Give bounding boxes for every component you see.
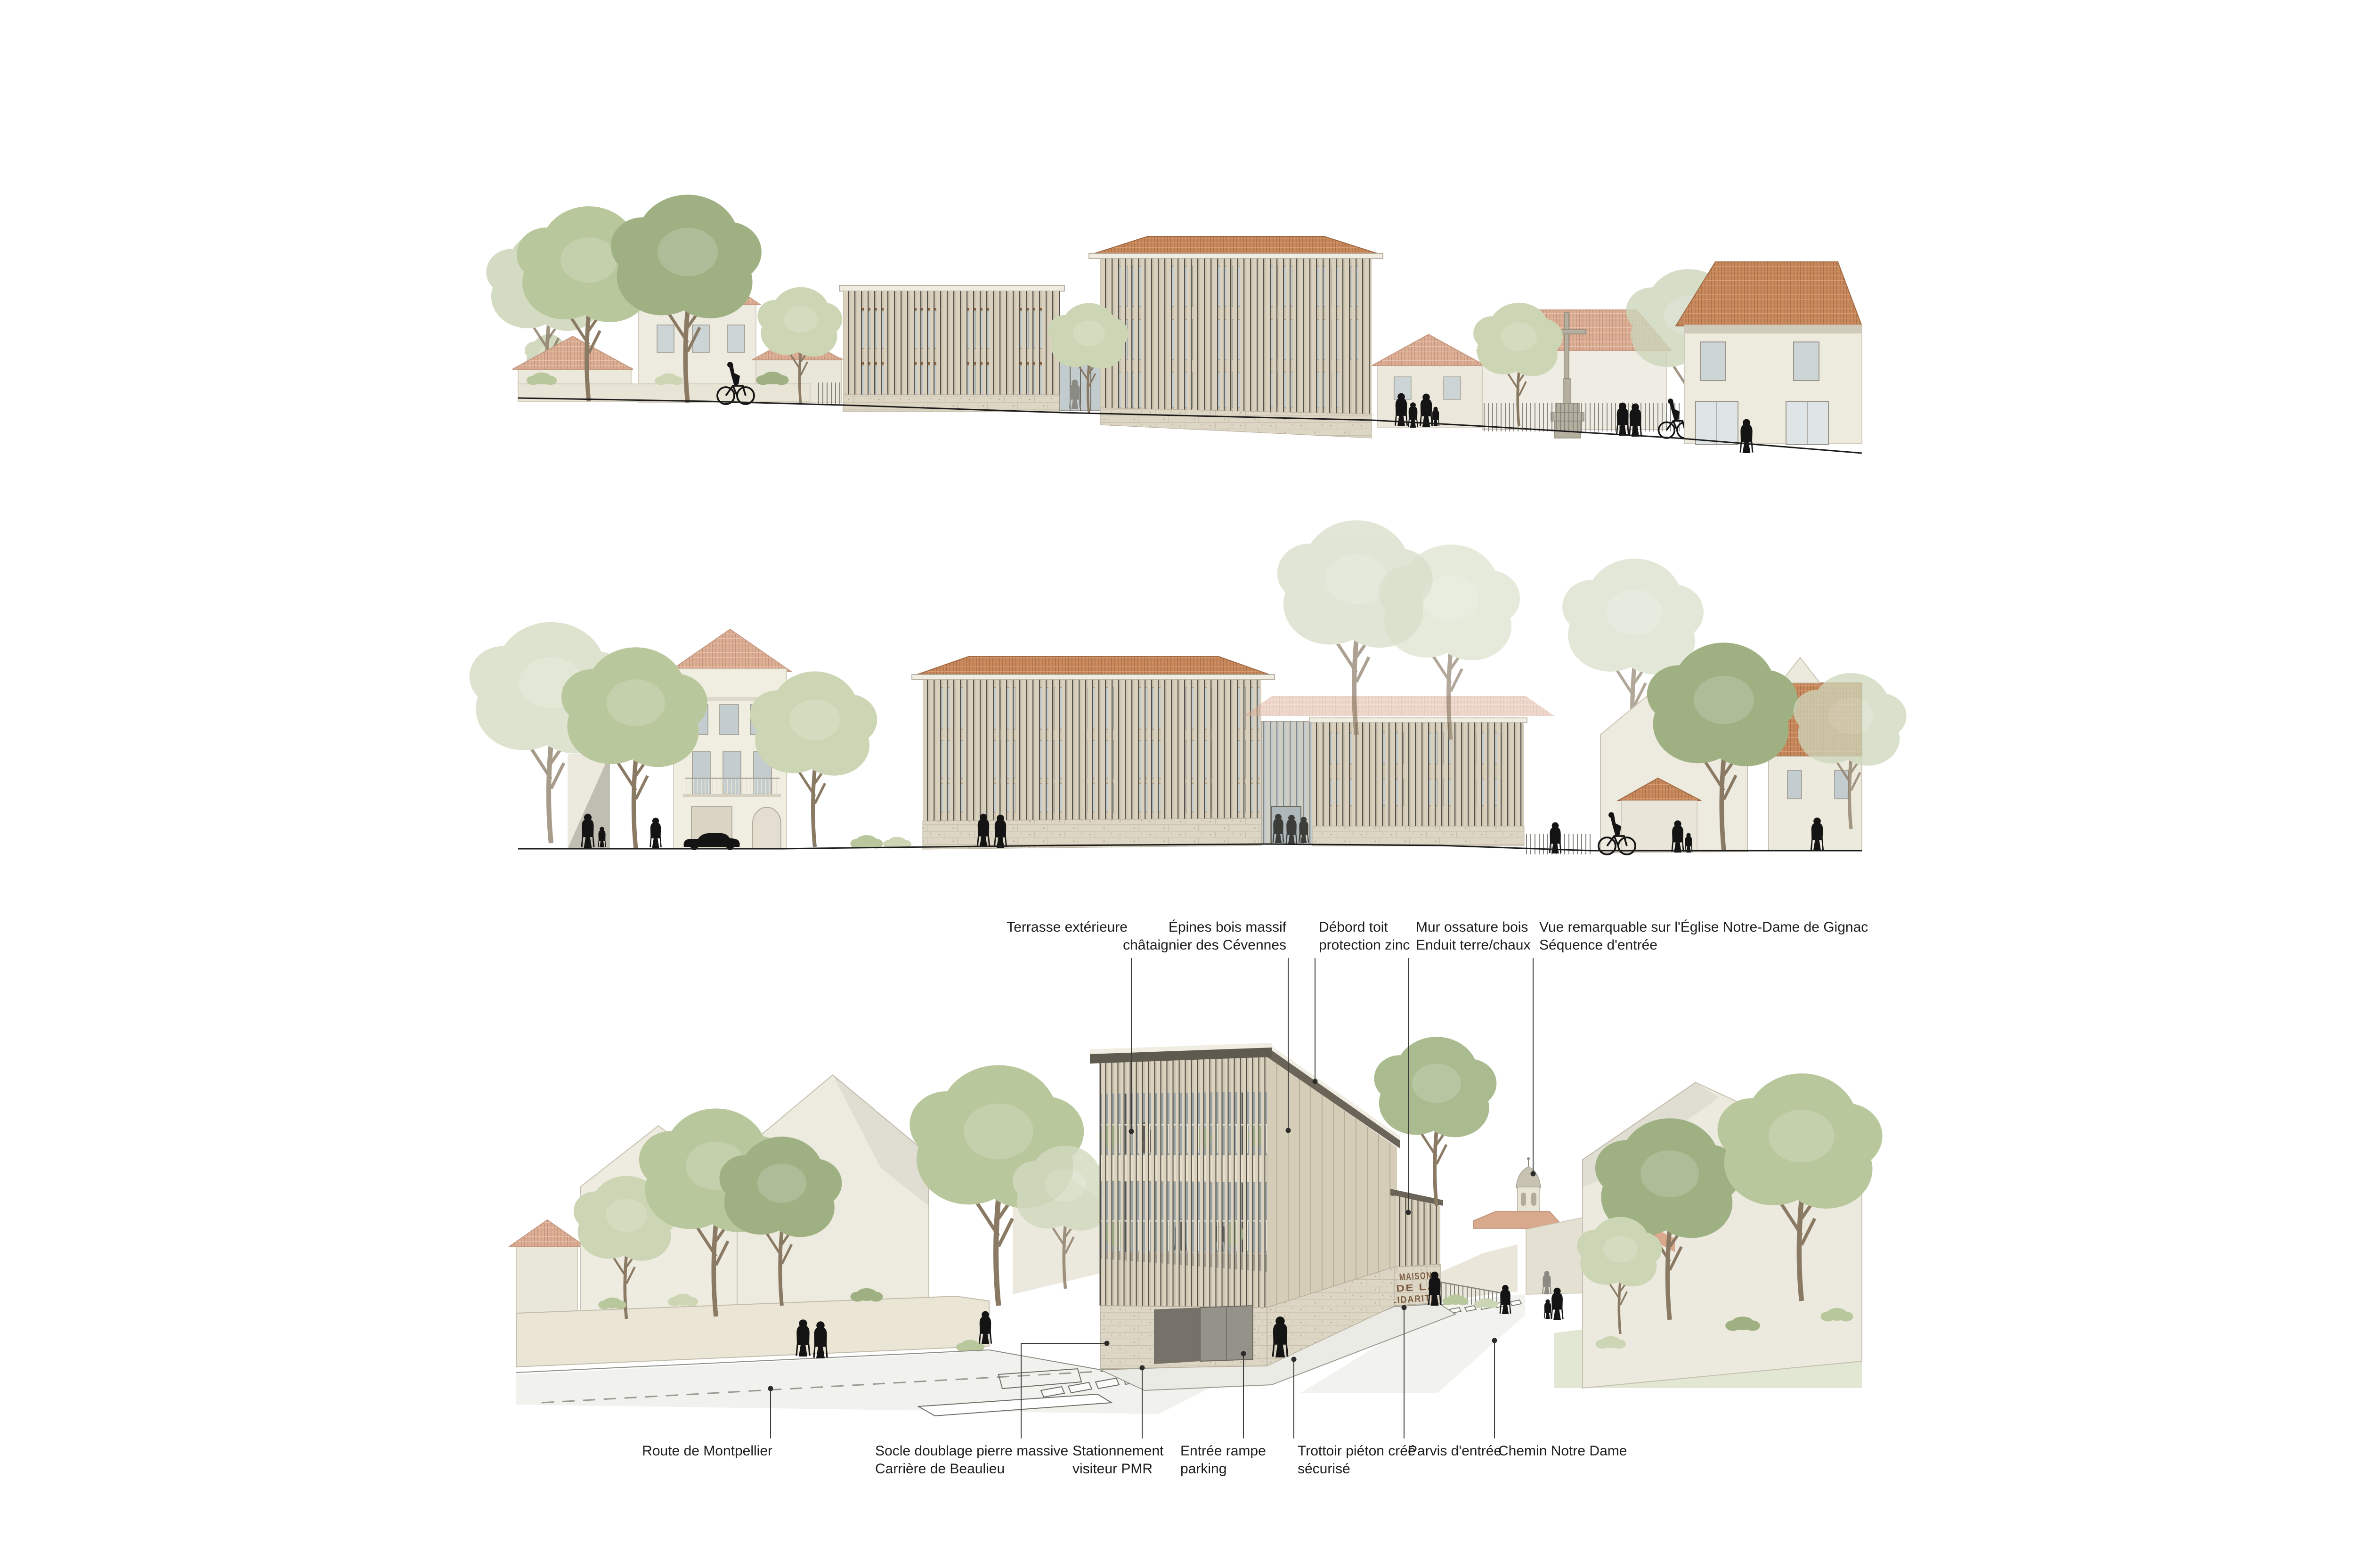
perspective-view: MAISON DE LA SOLIDARITÉ [510, 1037, 1883, 1416]
annotation-chemin-notre-dame: Chemin Notre Dame [1498, 1442, 1627, 1460]
annotation-epines-bois: Épines bois massif châtaignier des Céven… [1123, 918, 1286, 954]
annotation-parvis: Parvis d'entrée [1408, 1442, 1502, 1460]
annotation-vue-eglise: Vue remarquable sur l'Église Notre-Dame … [1539, 918, 1868, 954]
leader-vue-eglise [1531, 958, 1536, 1177]
annotation-entree-rampe: Entrée rampe parking [1180, 1442, 1266, 1478]
sign-line-1: MAISON [1399, 1270, 1432, 1283]
architectural-board: MAISON DE LA SOLIDARITÉ Terrasse extérie… [0, 0, 2355, 1568]
annotation-stationnement-pmr: Stationnement visiteur PMR [1072, 1442, 1163, 1478]
annotation-terrasse-exterieure: Terrasse extérieure [1007, 918, 1128, 936]
leader-debord-toit [1313, 958, 1318, 1084]
leader-chemin-notre-dame [1492, 1338, 1497, 1439]
drawing-canvas: MAISON DE LA SOLIDARITÉ [0, 0, 2355, 1568]
annotation-debord-toit: Débord toit protection zinc [1319, 918, 1410, 954]
elevation-street-2 [470, 520, 1907, 854]
elevation-street-1 [486, 195, 1862, 453]
annotation-socle-pierre: Socle doublage pierre massive Carrière d… [875, 1442, 1068, 1478]
annotation-trottoir: Trottoir piéton créé sécurisé [1298, 1442, 1416, 1478]
annotation-route-montpellier: Route de Montpellier [642, 1442, 772, 1460]
annotation-mur-ossature: Mur ossature bois Enduit terre/chaux [1416, 918, 1530, 954]
